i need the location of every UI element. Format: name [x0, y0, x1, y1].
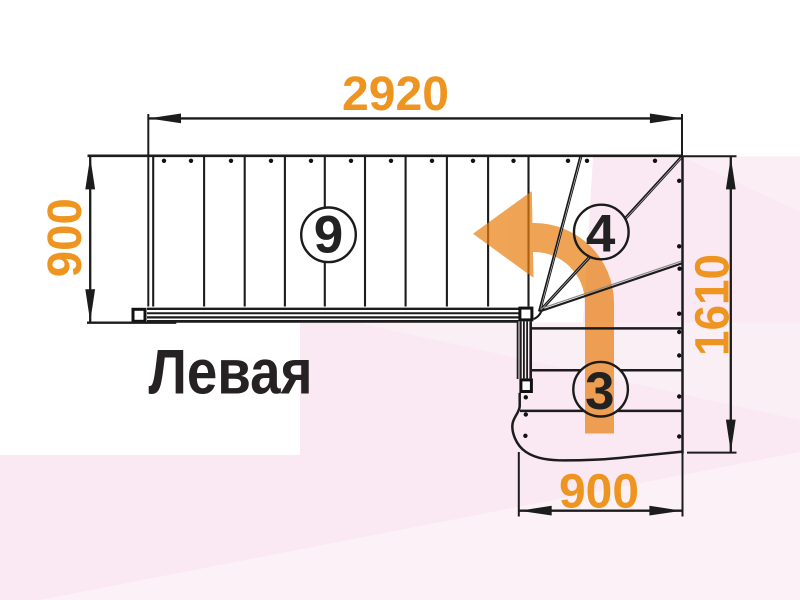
- svg-text:4: 4: [586, 205, 616, 264]
- svg-text:1610: 1610: [687, 254, 740, 356]
- svg-text:900: 900: [559, 466, 639, 519]
- svg-text:3: 3: [585, 362, 614, 421]
- svg-text:9: 9: [314, 206, 343, 265]
- svg-text:900: 900: [39, 198, 92, 277]
- svg-text:2920: 2920: [342, 68, 449, 121]
- svg-text:Левая: Левая: [149, 338, 313, 408]
